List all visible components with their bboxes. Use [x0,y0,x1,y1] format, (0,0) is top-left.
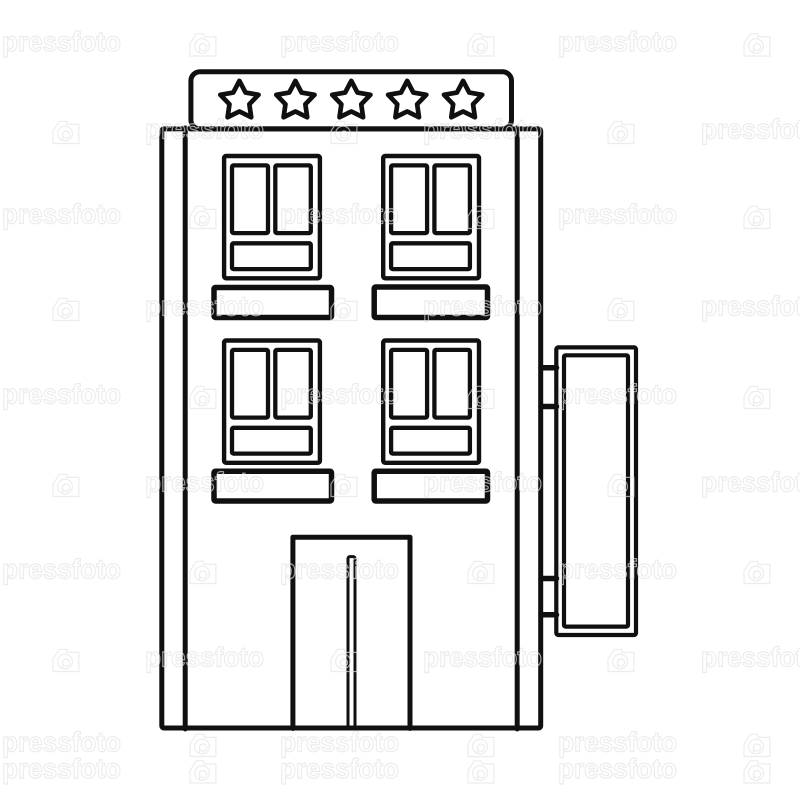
svg-text:pressfoto: pressfoto [2,26,121,57]
svg-text:pressfoto: pressfoto [2,199,121,230]
svg-text:pressfoto: pressfoto [280,199,399,230]
svg-text:pressfoto: pressfoto [423,291,542,322]
svg-text:pressfoto: pressfoto [558,379,677,410]
svg-text:pressfoto: pressfoto [145,291,264,322]
svg-text:pressfoto: pressfoto [2,554,121,585]
svg-text:pressfoto: pressfoto [558,753,677,784]
svg-text:pressfoto: pressfoto [701,114,800,145]
svg-text:pressfoto: pressfoto [280,753,399,784]
svg-text:pressfoto: pressfoto [423,642,542,673]
svg-text:pressfoto: pressfoto [2,753,121,784]
svg-text:pressfoto: pressfoto [280,26,399,57]
svg-text:pressfoto: pressfoto [145,642,264,673]
svg-text:pressfoto: pressfoto [701,291,800,322]
svg-text:pressfoto: pressfoto [280,554,399,585]
svg-text:pressfoto: pressfoto [558,199,677,230]
svg-text:pressfoto: pressfoto [423,114,542,145]
svg-text:pressfoto: pressfoto [558,26,677,57]
svg-text:pressfoto: pressfoto [558,554,677,585]
svg-text:pressfoto: pressfoto [423,467,542,498]
svg-text:pressfoto: pressfoto [2,379,121,410]
svg-text:pressfoto: pressfoto [145,467,264,498]
svg-text:pressfoto: pressfoto [701,642,800,673]
svg-text:pressfoto: pressfoto [280,379,399,410]
svg-text:pressfoto: pressfoto [701,467,800,498]
svg-text:pressfoto: pressfoto [145,114,264,145]
